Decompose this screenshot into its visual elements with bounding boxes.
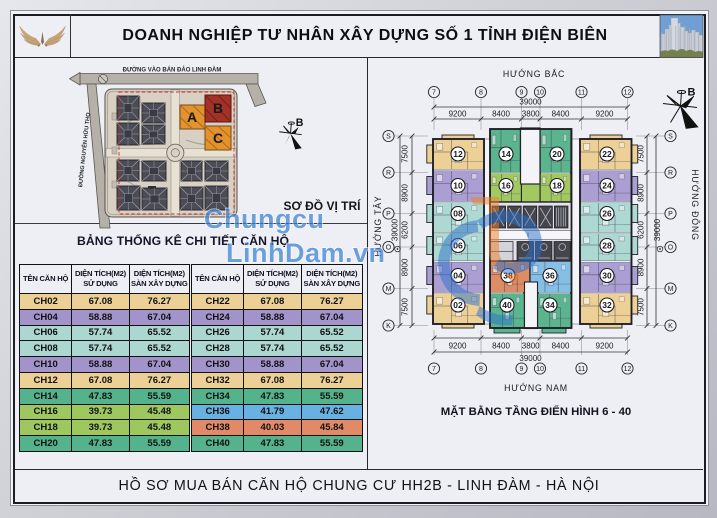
svg-text:LinhDam.vn: LinhDam.vn (226, 238, 386, 268)
svg-text:Chungcu: Chungcu (204, 204, 324, 234)
